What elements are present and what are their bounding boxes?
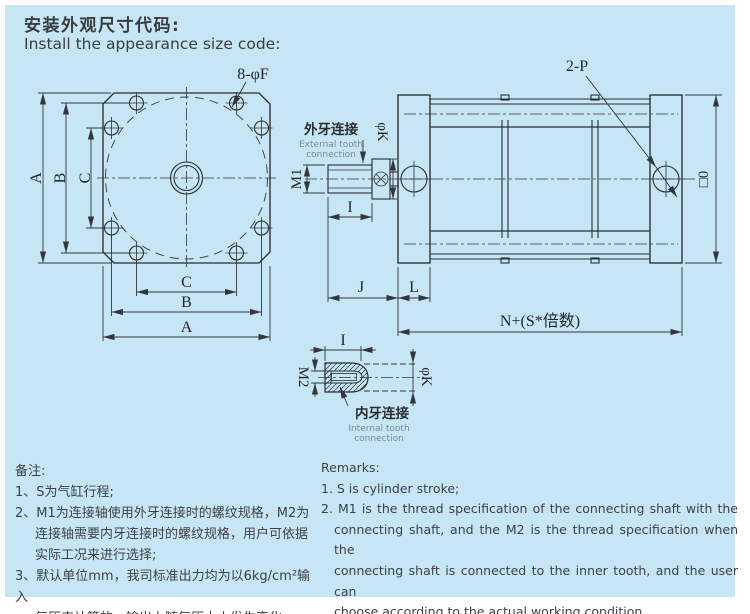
- remarks-en-line: connecting shaft is connected to the inn…: [321, 561, 738, 602]
- catalog-page: 安装外观尺寸代码: Install the appearance size co…: [0, 0, 750, 614]
- dim-label-c-left: C: [77, 173, 94, 184]
- remarks-zh-line: 实际工况来进行选择;: [15, 545, 319, 566]
- dim-label-phik-side: φK: [374, 122, 390, 142]
- dim-label-j: J: [358, 279, 364, 296]
- remarks-en-line: connecting shaft, and the M2 is the thre…: [321, 520, 738, 561]
- detail-view: I M2 φK 内牙连接 Internal tooth connection: [295, 332, 434, 444]
- dim-label-8-holes: 8-φF: [237, 66, 269, 83]
- internal-tooth-label-en-2: connection: [354, 434, 404, 444]
- external-tooth-label-en-2: connection: [306, 150, 356, 160]
- remarks-en-line: 1. S is cylinder stroke;: [321, 479, 738, 500]
- dim-label-a-left: A: [28, 172, 45, 184]
- dim-label-square: □0: [696, 171, 712, 188]
- remarks-en-line: 2. M1 is the thread specification of the…: [321, 499, 738, 520]
- remarks-en-line: choose according to the actual working c…: [321, 602, 738, 614]
- dim-label-b-left: B: [52, 173, 69, 184]
- dim-label-phik-detail: φK: [418, 367, 434, 387]
- front-view: A B C C B A 8-φF: [28, 66, 276, 341]
- remarks-zh-line: 1、S为气缸行程;: [15, 482, 319, 503]
- dim-label-b-bottom: B: [181, 294, 192, 311]
- remarks-zh-line: 连接轴需要内牙连接时的螺纹规格，用户可依据: [15, 524, 319, 545]
- external-tooth-label-en-1: External tooth: [299, 140, 363, 150]
- j-l-dimensions: [328, 267, 430, 336]
- dim-label-i-side: I: [347, 199, 352, 216]
- remarks-en-heading: Remarks:: [321, 458, 738, 479]
- remarks-zh-line: 3、默认单位mm，我司标准出力均为以6kg/cm²输入: [15, 566, 319, 608]
- threaded-cavity: [331, 371, 362, 383]
- dim-label-a-bottom: A: [181, 319, 193, 336]
- internal-tooth-label-zh: 内牙连接: [355, 405, 409, 422]
- internal-tooth-label-en-1: Internal tooth: [348, 424, 409, 434]
- remarks-zh-line: 气压来计算的，输出力随气压大小发生变化。: [15, 608, 319, 614]
- dim-label-ports: 2-P: [566, 58, 588, 75]
- dim-label-l: L: [409, 279, 419, 296]
- remarks-zh-line: 2、M1为连接轴使用外牙连接时的螺纹规格，M2为: [15, 503, 319, 524]
- remarks-chinese: 备注: 1、S为气缸行程; 2、M1为连接轴使用外牙连接时的螺纹规格，M2为 连…: [15, 461, 319, 614]
- dim-label-c-bottom: C: [181, 274, 192, 291]
- side-view: M1 φK I J L: [289, 58, 722, 336]
- remarks-english: Remarks: 1. S is cylinder stroke; 2. M1 …: [321, 458, 738, 614]
- dim-label-length: N+(S*倍数): [500, 312, 580, 330]
- remarks-zh-heading: 备注:: [15, 461, 319, 482]
- dim-label-m1: M1: [289, 169, 305, 190]
- external-tooth-label-zh: 外牙连接: [304, 121, 358, 138]
- dim-label-m2: M2: [295, 367, 311, 388]
- dim-label-i-detail: I: [340, 332, 345, 349]
